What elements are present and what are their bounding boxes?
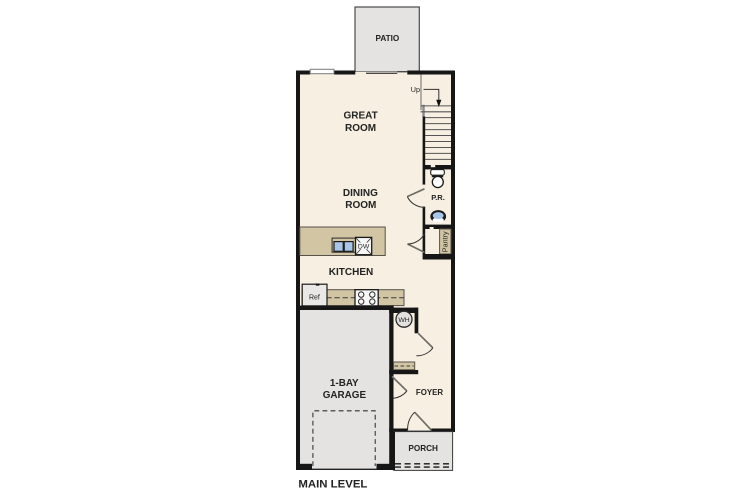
svg-text:MAIN LEVEL: MAIN LEVEL [298,479,367,491]
svg-text:1-BAY: 1-BAY [330,378,359,389]
svg-text:Pantry: Pantry [441,231,450,252]
svg-text:P.R.: P.R. [431,193,445,202]
svg-text:Ref: Ref [309,294,320,301]
svg-text:KITCHEN: KITCHEN [329,267,373,278]
svg-text:PORCH: PORCH [408,444,438,453]
svg-text:GREAT: GREAT [343,111,377,122]
svg-text:DINING: DINING [343,188,378,199]
svg-text:FOYER: FOYER [416,388,443,397]
svg-text:GARAGE: GARAGE [323,390,367,401]
svg-text:WH: WH [398,317,409,324]
svg-text:ROOM: ROOM [345,123,376,134]
svg-text:Up: Up [411,85,420,94]
svg-text:DW: DW [358,244,370,251]
svg-text:ROOM: ROOM [345,200,376,211]
svg-text:PATIO: PATIO [375,34,399,43]
